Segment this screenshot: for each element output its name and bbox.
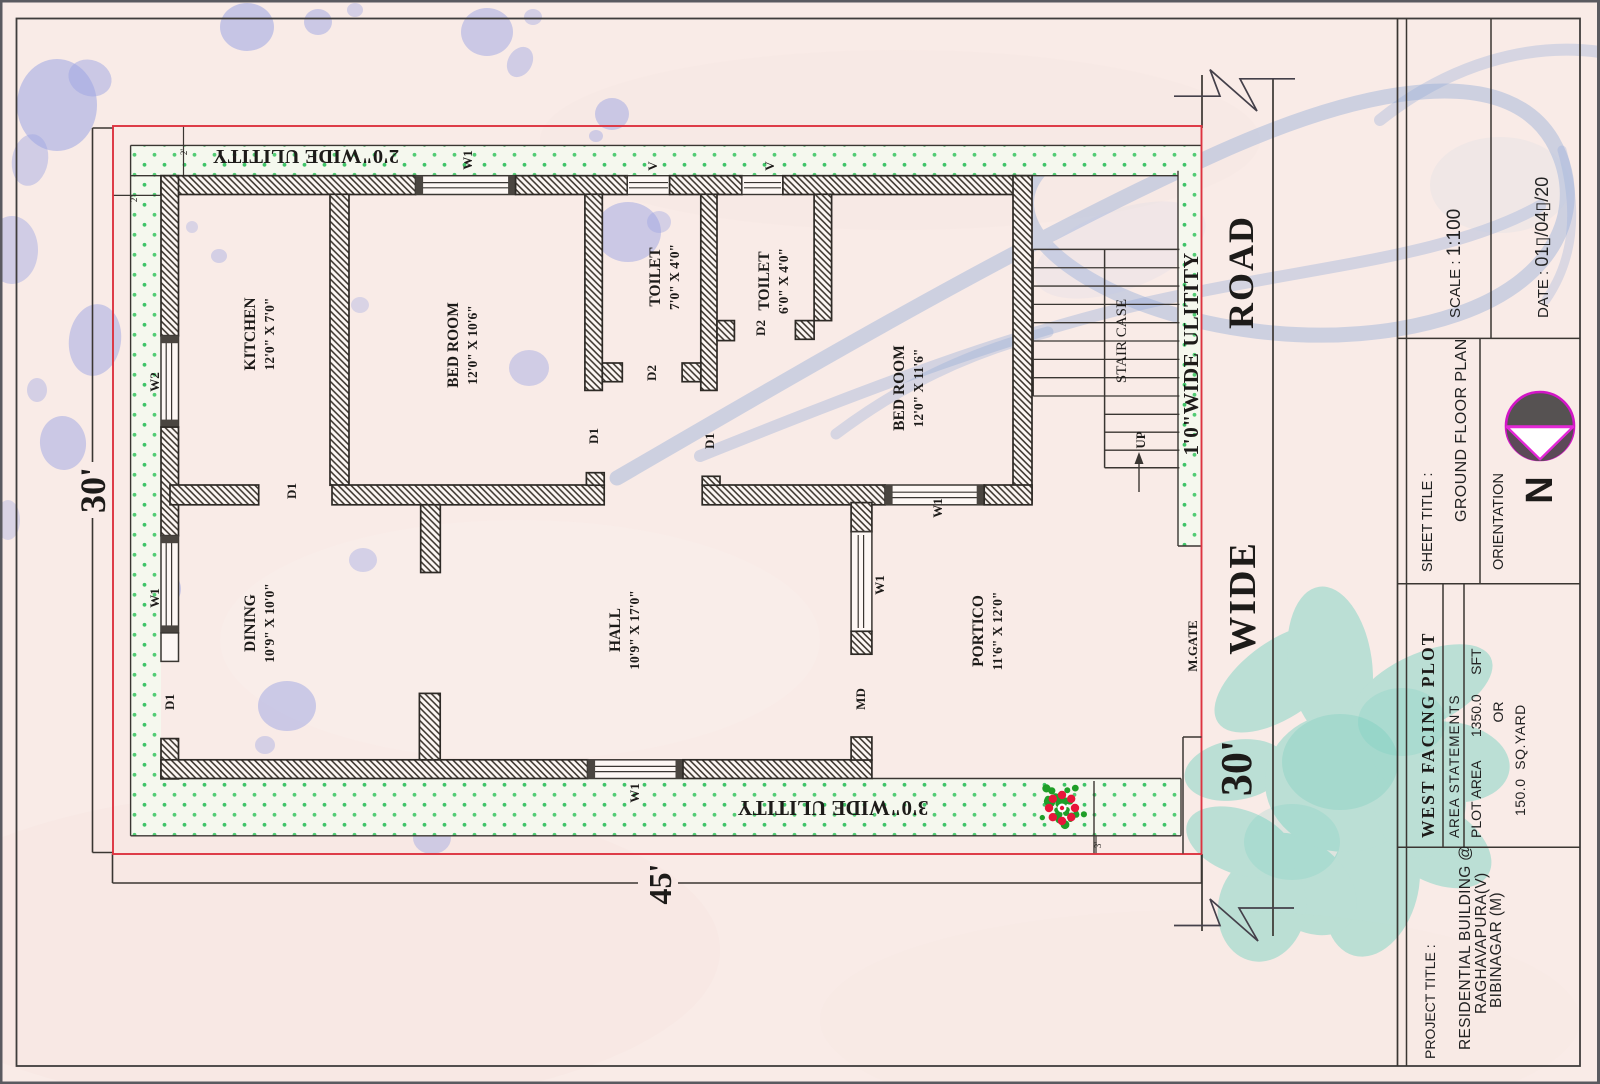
svg-text:W1: W1 [627, 783, 642, 803]
svg-text:D1: D1 [702, 433, 717, 449]
svg-text:150.0 SQ.YARD: 150.0 SQ.YARD [1512, 704, 1528, 838]
svg-text:KITCHEN: KITCHEN [242, 297, 259, 370]
svg-text:OR: OR [1490, 702, 1506, 723]
svg-text:11'6" X 12'0": 11'6" X 12'0" [990, 592, 1005, 671]
svg-text:DINING: DINING [242, 594, 259, 652]
svg-text:SHEET TITLE :: SHEET TITLE : [1420, 473, 1436, 572]
svg-text:D1: D1 [284, 483, 299, 499]
svg-text:ROAD: ROAD [1221, 215, 1261, 329]
svg-text:STAIR CASE: STAIR CASE [1114, 299, 1130, 383]
svg-text:D2: D2 [644, 365, 659, 381]
svg-text:MD: MD [853, 688, 868, 710]
svg-text:2': 2' [179, 149, 189, 156]
svg-text:V: V [762, 161, 777, 171]
svg-text:UP: UP [1133, 431, 1148, 448]
svg-text:12'0" X 11'6": 12'0" X 11'6" [911, 349, 926, 428]
svg-text:W1: W1 [872, 575, 887, 595]
svg-text:W1: W1 [460, 150, 475, 170]
svg-text:2'0"WIDE ULITITY: 2'0"WIDE ULITITY [213, 145, 399, 167]
svg-text:HALL: HALL [607, 608, 624, 652]
svg-text:TOILET: TOILET [756, 251, 773, 311]
svg-text:BIBINAGAR (M): BIBINAGAR (M) [1488, 892, 1505, 1008]
svg-text:W1: W1 [930, 498, 945, 518]
svg-text:10'9" X 10'0": 10'9" X 10'0" [262, 583, 277, 663]
svg-text:BED ROOM: BED ROOM [891, 345, 908, 431]
svg-text:12'0" X 7'0": 12'0" X 7'0" [262, 298, 277, 371]
svg-text:TOILET: TOILET [647, 247, 664, 307]
svg-text:6'0" X 4'0": 6'0" X 4'0" [776, 248, 791, 314]
svg-text:W2: W2 [147, 372, 162, 392]
svg-text:W1: W1 [147, 588, 162, 608]
svg-text:RESIDENTIAL BUILDING @: RESIDENTIAL BUILDING @ [1457, 845, 1474, 1050]
svg-text:7'0" X 4'0": 7'0" X 4'0" [667, 244, 682, 310]
svg-text:WEST FACING PLOT: WEST FACING PLOT [1418, 632, 1438, 838]
svg-text:ORIENTATION: ORIENTATION [1491, 473, 1507, 570]
svg-text:GROUND FLOOR PLAN: GROUND FLOOR PLAN [1453, 338, 1470, 522]
svg-text:D1: D1 [586, 428, 601, 444]
svg-text:30': 30' [1212, 740, 1261, 796]
svg-text:DATE : 01▯/04▯/20: DATE : 01▯/04▯/20 [1532, 177, 1552, 318]
svg-text:N: N [1519, 476, 1561, 503]
svg-text:BED ROOM: BED ROOM [445, 302, 462, 388]
svg-text:3': 3' [1093, 842, 1103, 849]
svg-text:SCALE : 1:100: SCALE : 1:100 [1444, 209, 1465, 318]
svg-text:3'0"WIDE ULITITY: 3'0"WIDE ULITITY [738, 796, 929, 820]
svg-text:PLOT AREA 1350.0 SFT: PLOT AREA 1350.0 SFT [1468, 648, 1484, 838]
svg-text:1'0"WIDE ULITITY: 1'0"WIDE ULITITY [1179, 252, 1203, 455]
svg-text:D2: D2 [753, 320, 768, 336]
svg-text:PORTICO: PORTICO [970, 595, 987, 667]
svg-text:WIDE: WIDE [1222, 541, 1264, 655]
svg-text:V: V [645, 161, 660, 171]
svg-text:10'9" X 17'0": 10'9" X 17'0" [627, 590, 642, 670]
svg-text:PROJECT TITLE :: PROJECT TITLE : [1422, 944, 1438, 1059]
svg-text:45': 45' [642, 864, 678, 905]
svg-text:12'0" X 10'6": 12'0" X 10'6" [465, 305, 480, 385]
svg-text:D1: D1 [162, 694, 177, 710]
svg-text:M.GATE: M.GATE [1185, 620, 1200, 671]
svg-text:30': 30' [73, 467, 113, 513]
svg-text:2': 2' [129, 196, 139, 203]
svg-text:AREA STATEMENTS: AREA STATEMENTS [1447, 694, 1462, 838]
